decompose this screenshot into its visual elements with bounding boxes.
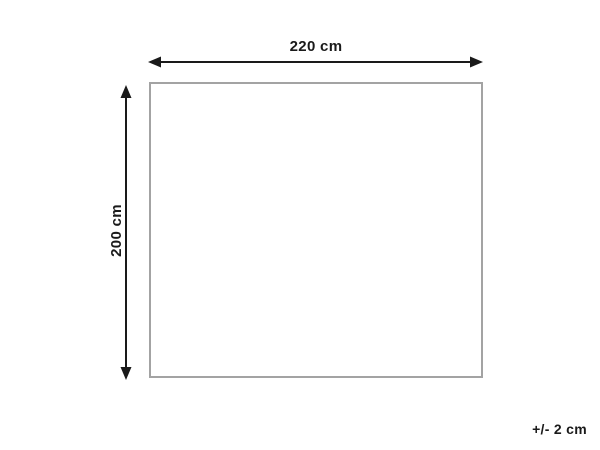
arrowhead-left-icon (148, 57, 161, 68)
height-dimension-label: 200 cm (108, 204, 125, 257)
height-dimension-label-box: 200 cm (98, 85, 134, 375)
arrowhead-right-icon (470, 57, 483, 68)
width-arrow (148, 57, 483, 68)
product-outline-rectangle (149, 82, 483, 378)
tolerance-label: +/- 2 cm (532, 421, 587, 437)
width-dimension-label: 220 cm (149, 38, 483, 55)
dimension-diagram: 220 cm 200 cm +/- 2 cm (0, 0, 600, 450)
